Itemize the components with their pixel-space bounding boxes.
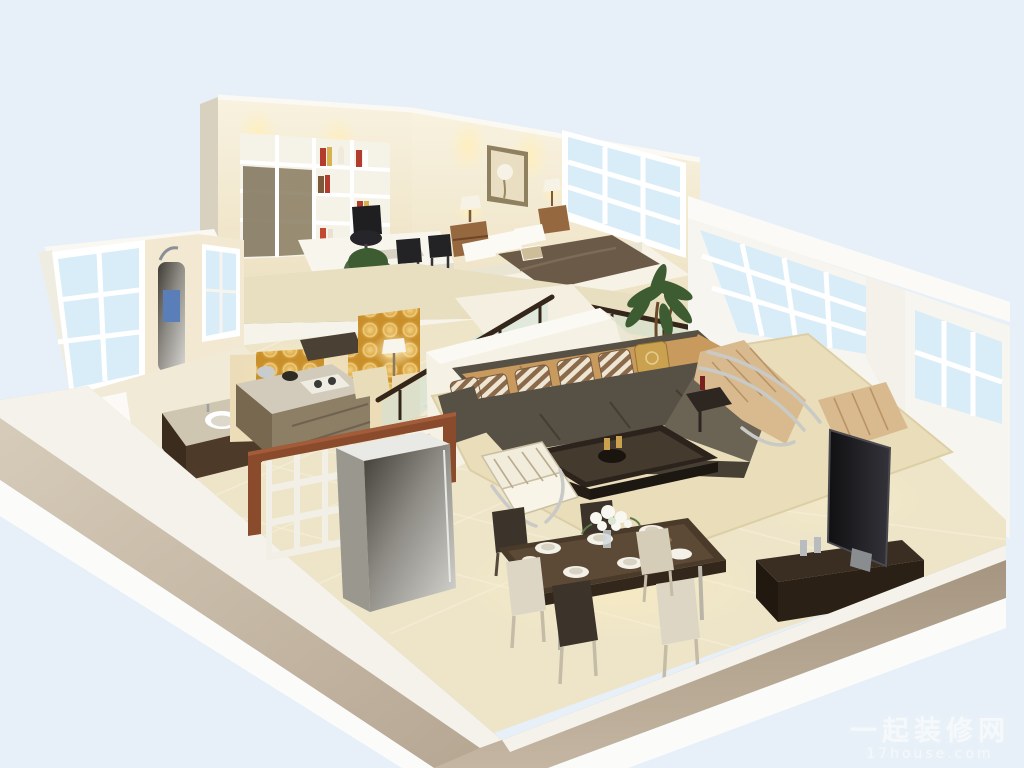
- tray: [598, 449, 626, 463]
- canister: [800, 540, 807, 556]
- apartment-cutaway-render: [0, 0, 1024, 768]
- bottle: [616, 436, 622, 448]
- tv-screen: [828, 430, 890, 566]
- wine-bottle: [700, 376, 705, 390]
- stair-floor-lamp: [382, 338, 406, 354]
- table-lamp: [543, 178, 561, 192]
- kettle: [282, 371, 298, 381]
- table-lamp: [460, 195, 481, 210]
- canister: [814, 537, 821, 553]
- bedroom-downlight-glow: [449, 120, 487, 172]
- picture-frame: [487, 145, 528, 207]
- refrigerator: [336, 432, 456, 612]
- render-canvas: 一起装修网 17house.com: [0, 0, 1024, 768]
- glass-cabinet-door: [243, 166, 275, 257]
- bottle: [604, 438, 610, 450]
- cooking-pot: [257, 366, 275, 378]
- shower-panel: [158, 248, 185, 372]
- table-leg: [700, 566, 702, 620]
